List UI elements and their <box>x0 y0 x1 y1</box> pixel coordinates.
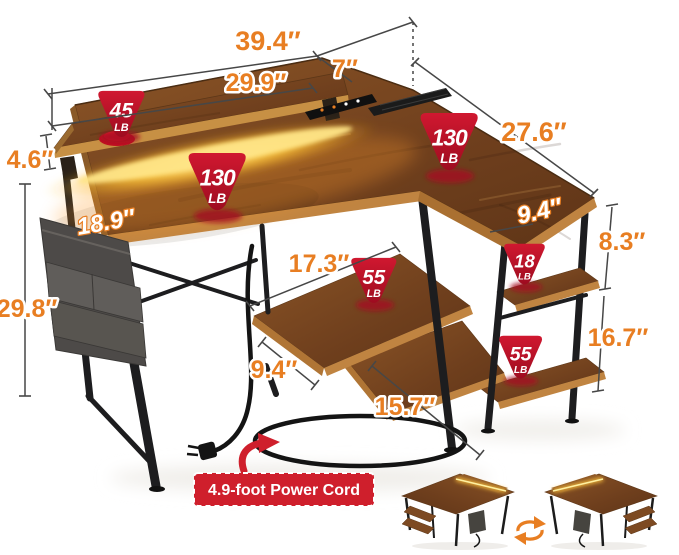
dim-bottom-shelf-width: 15.7″ <box>375 393 436 421</box>
power-plug-icon <box>187 441 218 461</box>
svg-text:55: 55 <box>510 344 533 366</box>
mini-desk-right-thumbnail <box>545 474 657 550</box>
svg-text:45: 45 <box>109 100 134 123</box>
desk-illustration: 4.9-foot Power Cord 45 LB 130 LB 130 LB … <box>0 0 679 555</box>
svg-text:55: 55 <box>362 266 385 289</box>
dim-back-extension: 7″ <box>332 55 358 83</box>
product-dimension-diagram: 4.9-foot Power Cord 45 LB 130 LB 130 LB … <box>0 0 679 555</box>
svg-text:130: 130 <box>200 164 236 190</box>
svg-text:LB: LB <box>514 365 528 376</box>
power-cord-callout: 4.9-foot Power Cord <box>194 473 374 506</box>
swap-arrows-icon <box>514 516 546 545</box>
dim-lower-shelf-gap: 16.7″ <box>588 324 649 352</box>
svg-text:LB: LB <box>367 288 382 300</box>
dim-shelf-height: 4.6″ <box>7 146 54 174</box>
dim-upper-shelf-gap: 8.3″ <box>599 228 646 256</box>
dim-wing-depth: 27.6″ <box>501 117 567 147</box>
dim-shelf-width: 29.9″ <box>226 69 287 97</box>
dim-desk-height: 29.8″ <box>0 295 57 323</box>
weight-badge-18: 18 LB <box>504 244 545 285</box>
svg-text:18: 18 <box>514 250 535 271</box>
dim-mid-shelf-depth: 9.4″ <box>251 356 298 384</box>
wing-lower-shelf <box>480 358 606 409</box>
svg-text:LB: LB <box>440 151 458 166</box>
dim-mid-shelf-width: 17.3″ <box>289 250 350 278</box>
svg-text:130: 130 <box>432 124 468 150</box>
svg-text:LB: LB <box>114 122 129 134</box>
svg-text:LB: LB <box>208 191 226 206</box>
svg-text:LB: LB <box>518 271 531 282</box>
dim-total-width: 39.4″ <box>235 26 301 56</box>
power-cord-callout-label: 4.9-foot Power Cord <box>208 482 360 499</box>
